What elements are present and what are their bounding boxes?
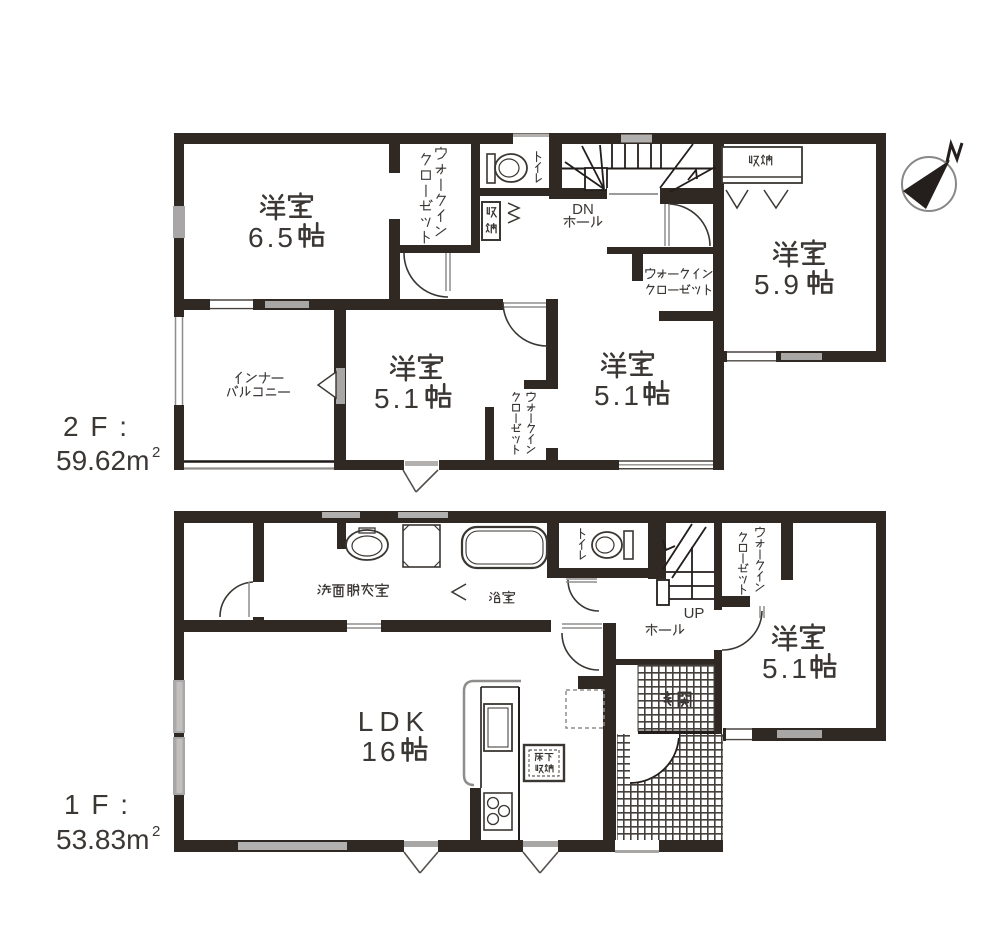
- svg-text:DN: DN: [572, 201, 594, 218]
- svg-text:5.1: 5.1: [762, 653, 810, 684]
- svg-text:2: 2: [152, 823, 160, 840]
- svg-text:5.9: 5.9: [754, 269, 802, 300]
- svg-text:16: 16: [361, 736, 398, 767]
- svg-text:1 F :: 1 F :: [64, 789, 130, 820]
- svg-text:2: 2: [152, 444, 160, 461]
- svg-text:5.1: 5.1: [374, 383, 422, 414]
- svg-text:LDK: LDK: [358, 706, 430, 737]
- svg-text:6.5: 6.5: [248, 222, 296, 253]
- svg-text:5.1: 5.1: [594, 380, 642, 411]
- svg-text:2 F :: 2 F :: [63, 411, 129, 442]
- svg-text:UP: UP: [684, 605, 705, 622]
- svg-text:53.83m: 53.83m: [56, 824, 149, 855]
- svg-text:59.62m: 59.62m: [56, 445, 149, 476]
